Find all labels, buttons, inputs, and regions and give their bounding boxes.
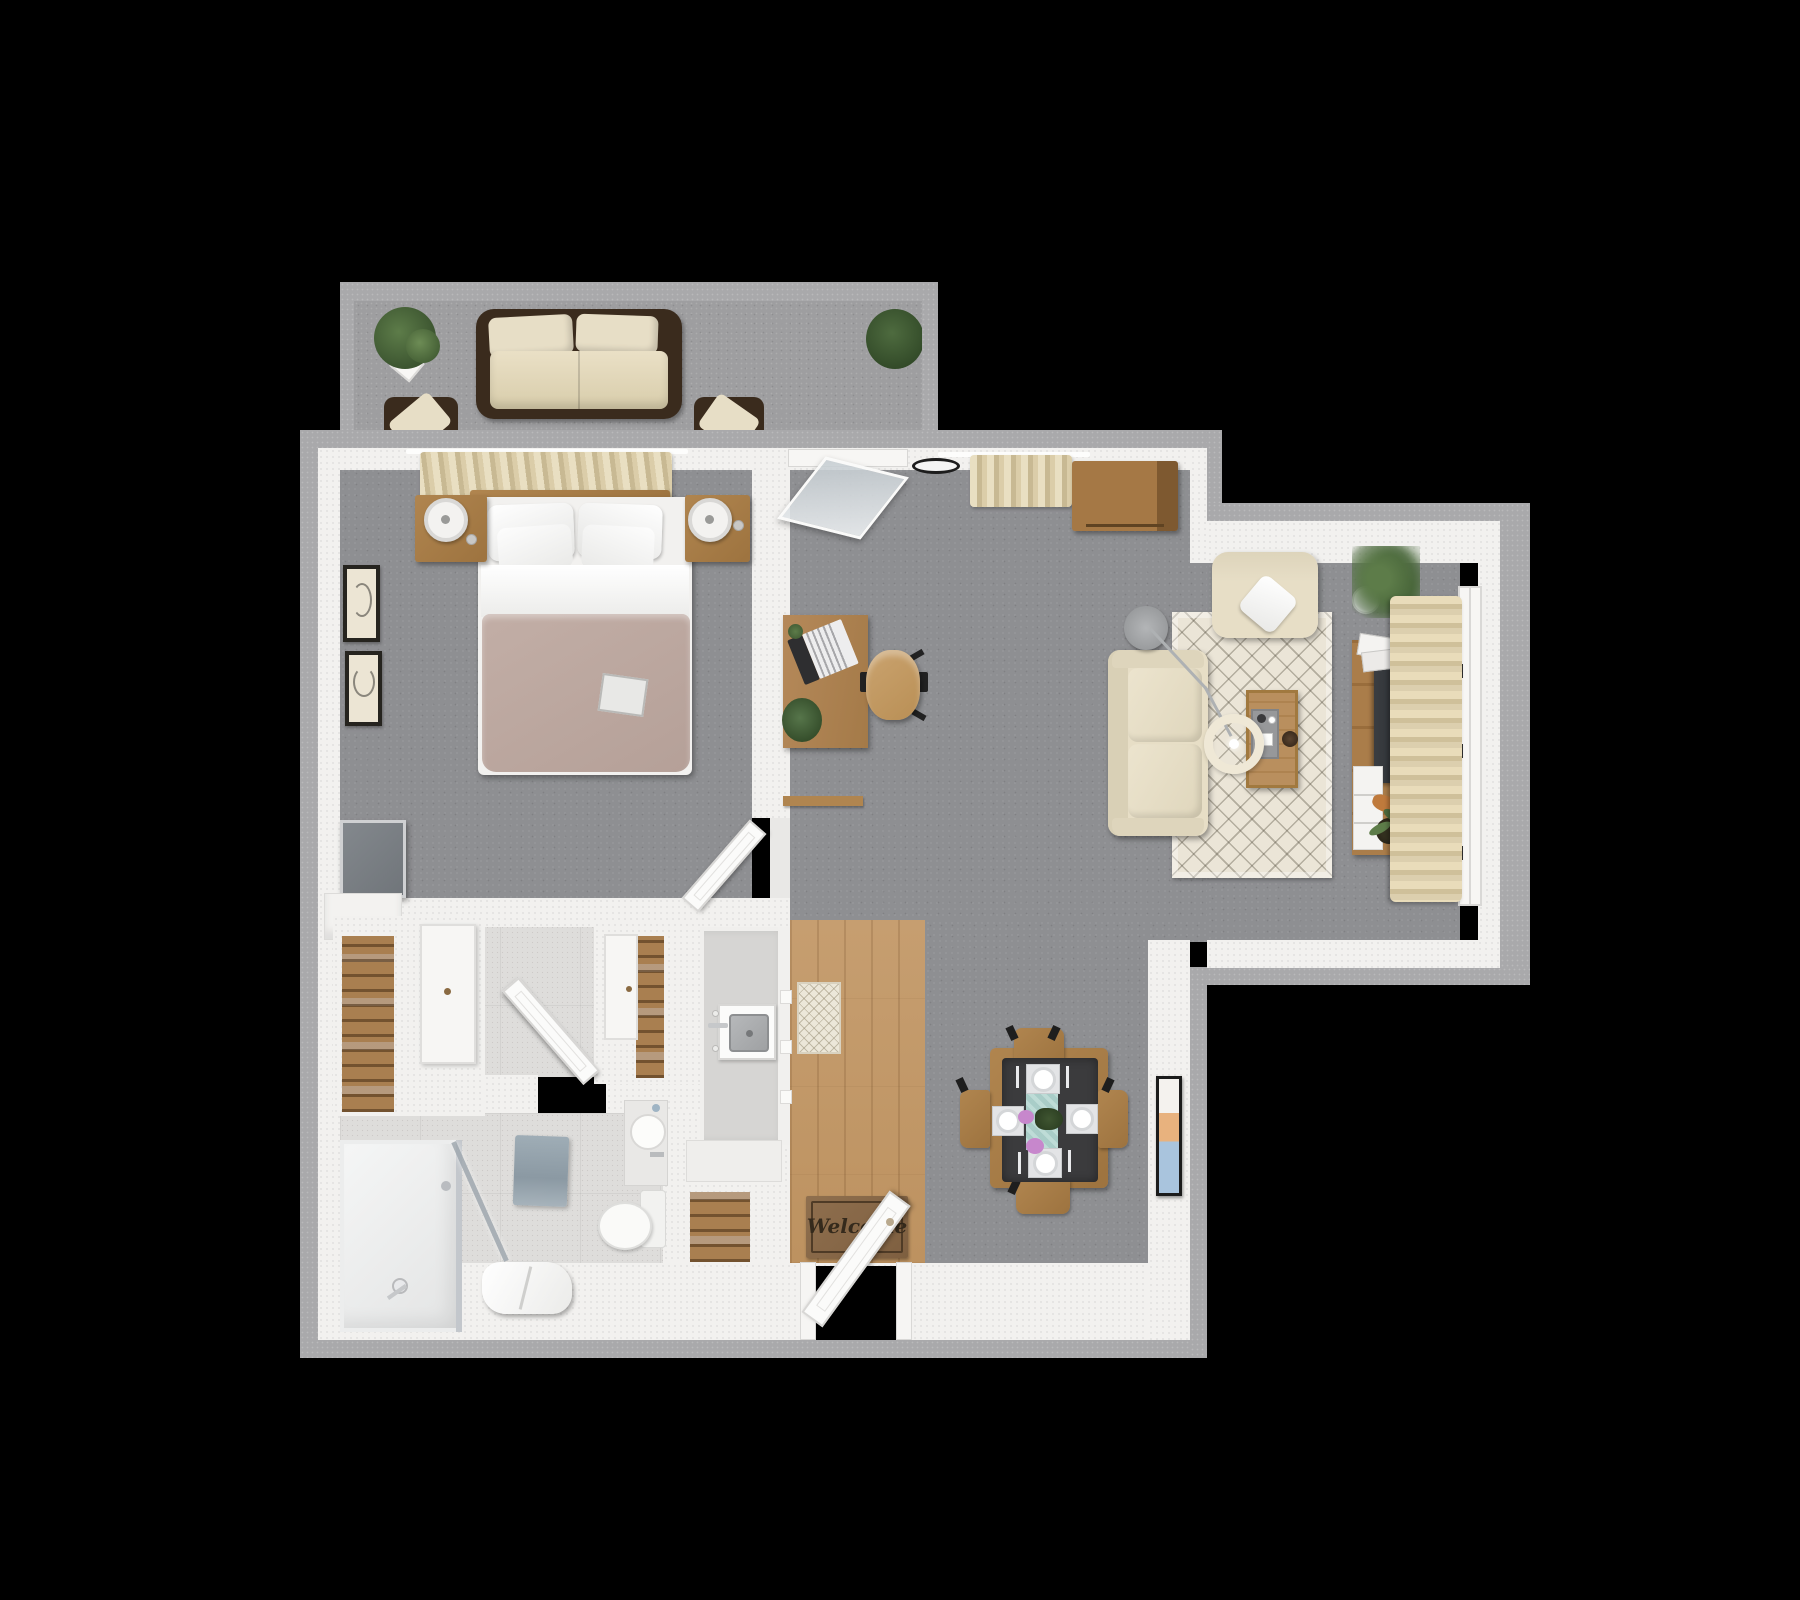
art-1-lines [352, 583, 372, 617]
arc-lamp-bulb [1229, 739, 1239, 749]
shower-door-knob [441, 1181, 451, 1191]
floorplan-canvas: Welcome [0, 0, 1800, 1600]
counter-shelf-nub-1 [780, 990, 792, 1004]
balcony-plant-right [866, 309, 922, 369]
counter-shelf-nub-3 [780, 1090, 792, 1104]
vanity-sink [630, 1114, 666, 1150]
floor-patch [1148, 920, 1207, 942]
shower-glass-edge [456, 1140, 462, 1332]
flowers-1 [1018, 1110, 1034, 1124]
kitchen-counter-edge [778, 927, 790, 1145]
dining-wall-art [1156, 1076, 1182, 1196]
wall-ext-bottom-outer [1207, 967, 1530, 985]
balcony-floor [354, 301, 922, 433]
cutlery-3 [1018, 1152, 1021, 1174]
book-on-bed [598, 673, 649, 717]
wall-ledge [783, 796, 863, 806]
lamp-right-finial [705, 515, 714, 524]
tray-cup [1268, 716, 1276, 724]
sink-knob-2 [712, 1045, 719, 1052]
desk-plant [782, 698, 822, 742]
wall-ext-right-outer [1500, 503, 1530, 985]
balcony-plant-left-leaves [406, 329, 440, 363]
tray-item-1 [1257, 714, 1266, 723]
kitchen-counter-return [686, 1140, 782, 1182]
place-setting-right [1066, 1104, 1098, 1134]
closet-left-shelves [342, 936, 394, 1112]
decor-bowl [1282, 731, 1298, 747]
towel-blue [513, 1135, 569, 1207]
wall-bottom-outer [300, 1340, 1207, 1358]
sink-drain [746, 1030, 753, 1037]
wall-clock [912, 458, 960, 474]
wall-step-inner [1190, 448, 1207, 563]
office-chair [860, 646, 928, 726]
cutlery-2 [1066, 1066, 1069, 1088]
wall-ext-bottom-inner [1207, 940, 1500, 968]
closet-right-shelves [636, 936, 664, 1078]
wall-dining-right-outer [1190, 967, 1207, 1358]
kitchen-rug [797, 982, 841, 1054]
wicker-sofa-seat-gap [578, 351, 580, 409]
counter-shelf-nub-2 [780, 1040, 792, 1054]
bed-blanket [482, 614, 690, 772]
dining-chair-left [960, 1090, 990, 1148]
balcony-wall-right [921, 282, 938, 433]
storage-cabinet [1072, 461, 1178, 531]
art-2-lines [353, 667, 375, 697]
closet-left-door-knob [444, 988, 451, 995]
sofa [1108, 650, 1208, 836]
living-top-curtain [970, 455, 1072, 507]
flowers-2 [1026, 1138, 1044, 1154]
wall-left-outer [300, 430, 318, 1358]
bedroom-wall-art-1 [343, 565, 380, 642]
nightstand-right-cup [733, 520, 744, 531]
place-setting-top [1026, 1064, 1060, 1094]
dining-chair-bottom [1016, 1178, 1070, 1214]
bedroom-wall-art-2 [345, 651, 382, 726]
centerpiece-leaves [1035, 1108, 1063, 1130]
living-side-curtain [1390, 596, 1462, 902]
sink-faucet [708, 1023, 728, 1028]
sink-knob-1 [712, 1010, 719, 1017]
desk-cactus [788, 624, 803, 639]
bedroom-wall-tv [340, 820, 406, 898]
wall-ext-top-outer [1207, 503, 1530, 521]
front-door-knob [886, 1218, 894, 1226]
cutlery-4 [1068, 1150, 1071, 1172]
nightstand-left-cup [466, 534, 477, 545]
walk-in-shower [340, 1140, 460, 1332]
front-door-jamb-right [896, 1262, 912, 1340]
entry-closet-shelves [690, 1192, 750, 1262]
closet-right-door-knob [626, 986, 632, 992]
dining-chair-right [1098, 1090, 1128, 1148]
bed-sheet-fold [481, 565, 689, 617]
wall-top-outer [300, 430, 1207, 448]
vanity-faucet [650, 1152, 664, 1157]
cutlery-1 [1016, 1066, 1019, 1088]
wicker-sofa-pillow-right [575, 314, 658, 355]
cabinet-handle-line [1086, 524, 1164, 527]
toilet-bowl [598, 1202, 652, 1250]
lamp-left-finial [441, 515, 450, 524]
vanity-cup [652, 1104, 660, 1112]
closet-right-door [604, 934, 638, 1040]
